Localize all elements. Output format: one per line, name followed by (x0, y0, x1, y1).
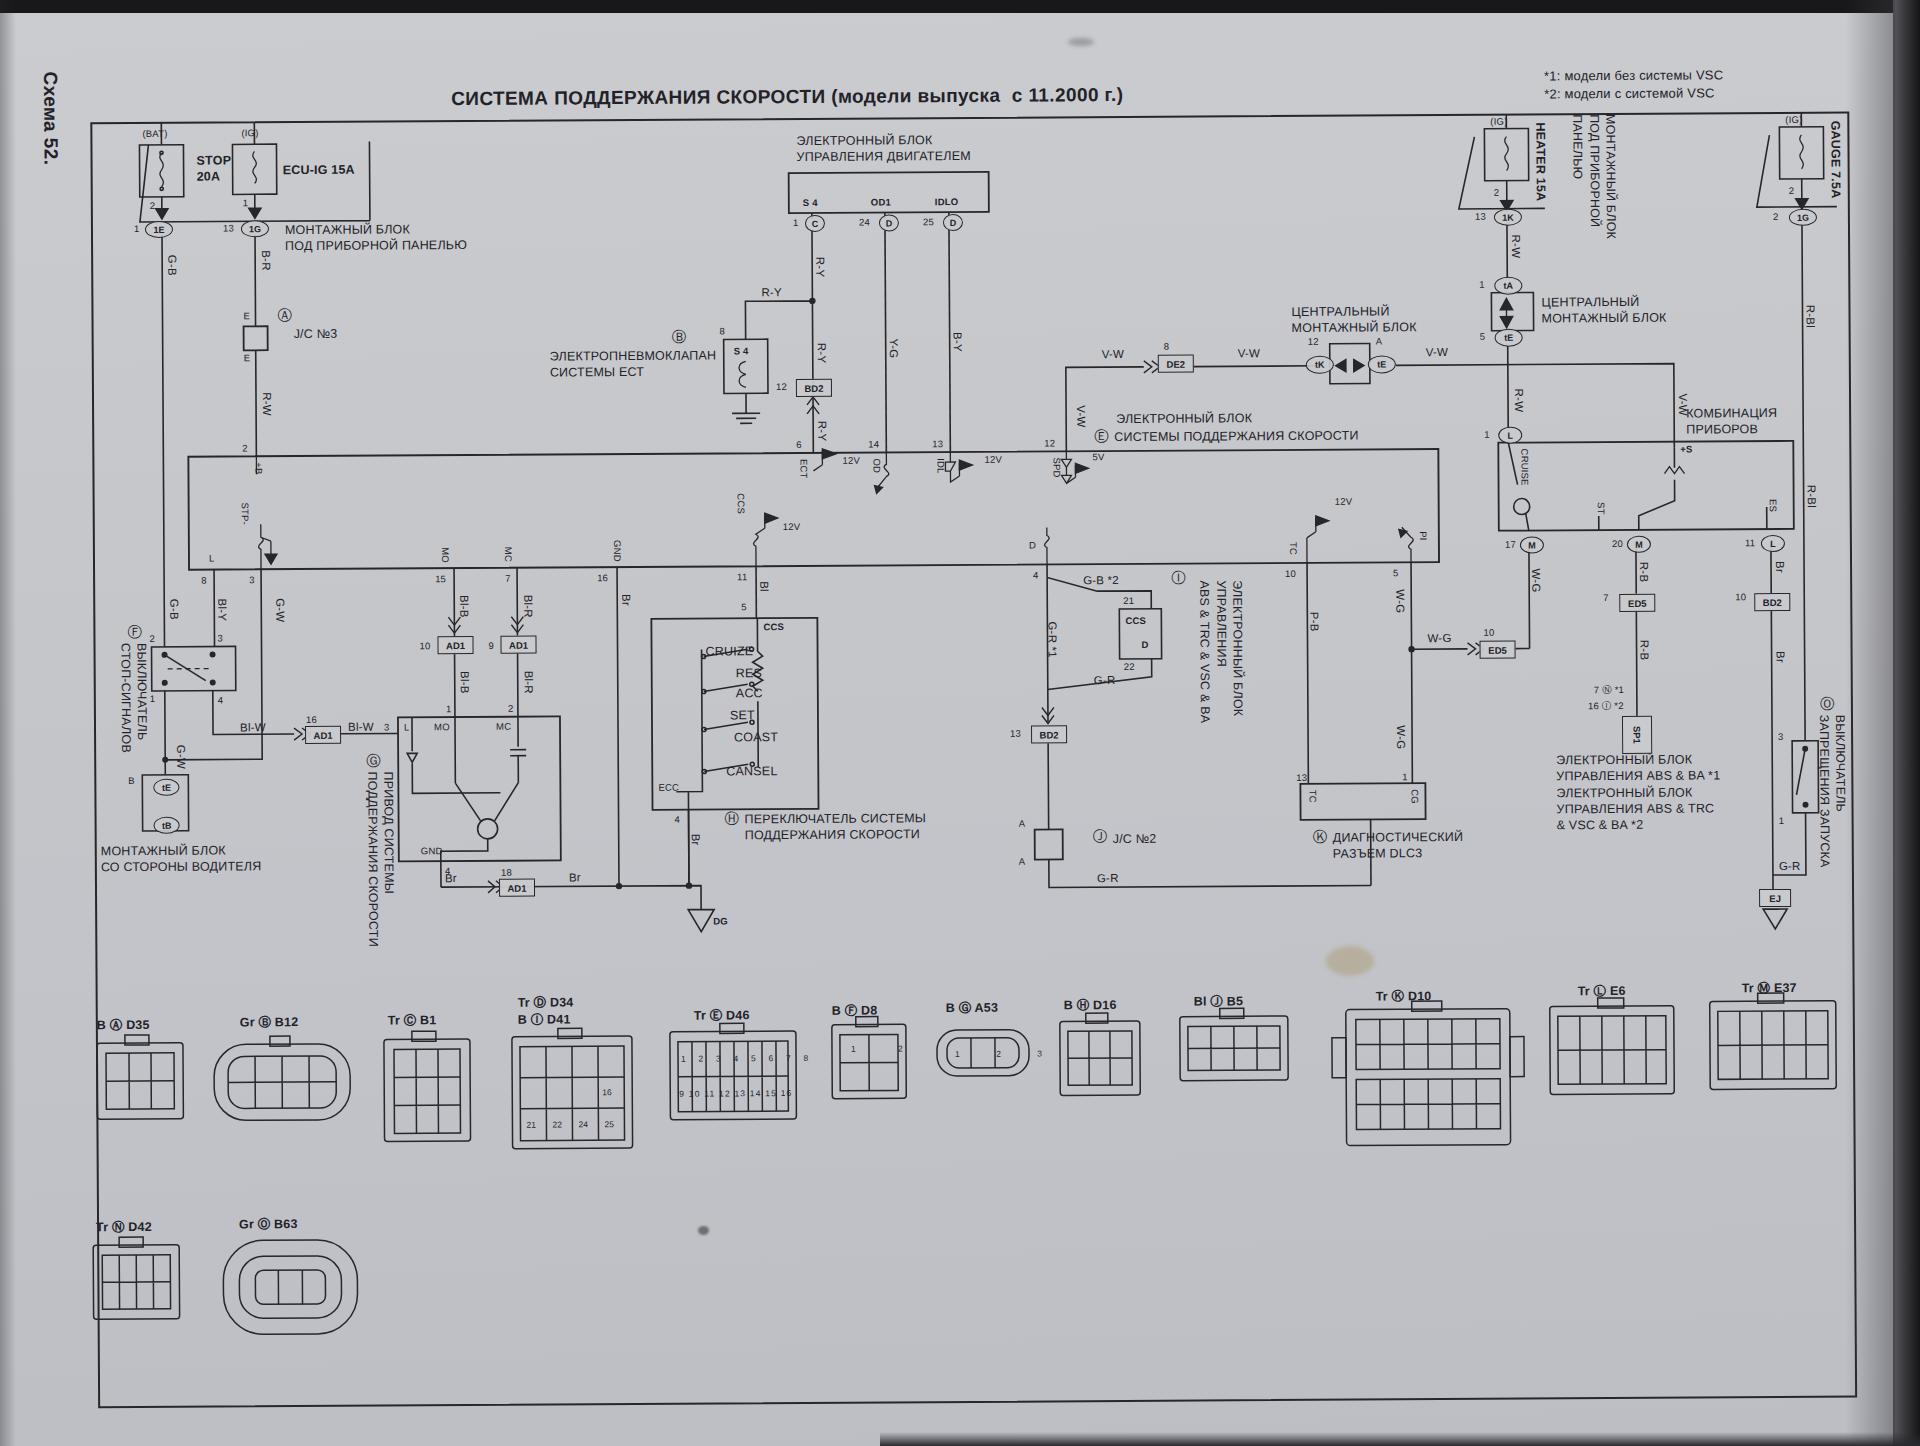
flag-5v: 5V (1092, 451, 1104, 463)
wire-label-gr: G-R (1779, 859, 1801, 874)
page-left-shadow (0, 0, 16, 1446)
cruise-ecu-internals (256, 445, 1413, 569)
terminal-mo: MO (439, 547, 451, 563)
conn-bd2: BD2 (796, 379, 832, 397)
cruise-ecu-callout: Ⓔ (1094, 427, 1109, 446)
wire-label-blr: Bl-R (520, 595, 535, 618)
conn-te: tE (1368, 355, 1396, 373)
note-vsc-2: *2: модели с системой VSC (1544, 85, 1715, 103)
connector-label-d46: Tr Ⓔ D46 (694, 1007, 750, 1024)
d34-cell: 22 (552, 1119, 562, 1129)
pin-5: 5 (1393, 567, 1399, 579)
pin-15: 15 (435, 573, 446, 585)
connector-label-d16: B Ⓗ D16 (1064, 997, 1117, 1014)
connector-b12 (214, 1036, 351, 1121)
engine-ecu-label: ЭЛЕКТРОННЫЙ БЛОК УПРАВЛЕНИЯ ДВИГАТЕЛЕМ (796, 132, 970, 166)
d34-cell: 21 (526, 1120, 536, 1130)
wire-label-br: Br (1773, 651, 1788, 663)
dlc3-pin-13: 13 (1296, 772, 1307, 784)
connector-d16 (1060, 1013, 1140, 1095)
wire-label-vw: V-W (1238, 346, 1260, 361)
abs-callout: Ⓘ (1171, 569, 1186, 588)
wire-label-yg: Y-G (886, 338, 901, 358)
bd2-12-num: 12 (776, 381, 787, 393)
note-vsc-1: *1: модели без системы VSC (1544, 67, 1723, 85)
actuator-pin1: 1 (446, 703, 452, 715)
l-num: 1 (1484, 429, 1490, 441)
wire-label-gw: G-W (173, 745, 188, 769)
dlc3-terminal-cg: CG (1408, 789, 1420, 804)
flag-12v: 12V (783, 521, 801, 533)
cruise-ecu-box (188, 449, 1439, 570)
te2-num: 5 (1480, 331, 1486, 343)
sp1-code: SP1 (1632, 726, 1643, 744)
conn-tk: tK (1306, 356, 1334, 374)
actuator-terminal-gnd: GND (421, 845, 443, 857)
wire-label-wg: W-G (1393, 725, 1408, 749)
control-sw-label: ПЕРЕКЛЮЧАТЕЛЬ СИСТЕМЫ ПОДДЕРЖАНИЯ СКОРОС… (745, 810, 927, 844)
stop-sw-pin3: 3 (217, 633, 223, 645)
driver-jb-label: МОНТАЖНЫЙ БЛОК СО СТОРОНЫ ВОДИТЕЛЯ (101, 842, 262, 875)
wire-label-br: Br (688, 834, 703, 846)
engine-ecu-terminal-idlo: IDLO (935, 196, 959, 208)
conn-tb: tB (154, 817, 180, 834)
conn-ad1: AD1 (499, 879, 535, 897)
wire-label-blb: Bl-B (457, 671, 472, 694)
connector-e6 (1550, 998, 1675, 1095)
wire-label-blw: Bl-W (240, 720, 266, 735)
terminal-idl: IDL (934, 458, 946, 473)
conn-1g2: 1G (1789, 209, 1817, 226)
actuator-terminal-l: L (404, 721, 410, 733)
wire-label-rb: R-B (1636, 562, 1651, 582)
meter-cruise-lamp-label: CRUISE (1518, 449, 1531, 486)
d34-cell: 16 (602, 1087, 612, 1097)
wire-label-gb2: G-B *2 (1083, 573, 1119, 588)
dlc3-pin-1: 1 (1402, 771, 1408, 783)
te-num: A (1376, 335, 1383, 347)
wire-label-blr: Bl-R (521, 671, 536, 694)
meter-es: ES (1766, 499, 1778, 512)
inhibit-switch-label: ВЫКЛЮЧАТЕЛЬ ЗАПРЕЩЕНИЯ ЗАПУСКА (1815, 715, 1848, 868)
m20-num: 20 (1612, 538, 1623, 550)
gauge-fuse-pin: 2 (1789, 185, 1795, 197)
dg-ground-label: DG (713, 915, 728, 927)
jc2-label: J/C №2 (1113, 831, 1157, 848)
wire-label-br: Br (1772, 561, 1787, 573)
terminal-tc: TC (1287, 542, 1299, 555)
page-fold-shadow (1845, 0, 1895, 1446)
ad1-16-num: 16 (306, 714, 317, 726)
pin-4: 4 (1033, 570, 1039, 582)
ej-ground-label: EJ (1759, 889, 1791, 907)
stop-switch-label: ВЫКЛЮЧАТЕЛЬ СТОП-СИГНАЛОВ (117, 643, 150, 753)
connector-label-d34: Tr Ⓓ D34 (518, 994, 574, 1011)
conn-ad1: AD1 (437, 636, 473, 654)
sp1-pin-n: 7 Ⓝ *1 (1594, 684, 1624, 697)
connector-label-e37: Tr Ⓜ E37 (1742, 980, 1797, 997)
connector-label-d41: B Ⓘ D41 (518, 1011, 571, 1028)
jc2-a-top: A (1019, 818, 1026, 830)
wire-label-bly: Bl-Y (214, 598, 229, 621)
conn-ed5: ED5 (1619, 594, 1655, 612)
engine-ecu-pin25: 25 (923, 216, 934, 228)
paper-spot (698, 1226, 709, 1235)
page-title: СИСТЕМА ПОДДЕРЖАНИЯ СКОРОСТИ (модели вып… (451, 83, 1123, 112)
heater-fuse-pin: 2 (1494, 187, 1500, 199)
wire-label-gr: G-R (1097, 871, 1119, 886)
conn-m: M (1520, 536, 1544, 553)
connector-label-b12: Gr Ⓑ B12 (240, 1014, 299, 1031)
actuator-box (397, 567, 561, 861)
flag-12v: 12V (984, 454, 1002, 466)
connector-label-b5: Bl Ⓙ B5 (1194, 993, 1243, 1010)
engine-ecu-pin24: 24 (859, 217, 870, 229)
ecuig-fuse-label: ECU-IG 15A (283, 162, 355, 179)
control-sw-cansel: CANSEL (726, 763, 777, 780)
a53-cells: 1 2 3 (955, 1048, 1059, 1059)
control-sw-coast: COAST (734, 729, 778, 746)
m17-num: 17 (1505, 539, 1516, 551)
ta-num: 1 (1479, 279, 1485, 291)
cruise-ecu-label-1: ЭЛЕКТРОННЫЙ БЛОК (1116, 410, 1252, 427)
abs-terminal-ccs: CCS (1125, 615, 1146, 627)
wire-label-vw: V-W (1102, 347, 1124, 362)
de2-8-num: 8 (1164, 341, 1170, 353)
control-sw-ecc: ECC (658, 782, 679, 794)
terminal-pi: PI (1416, 531, 1428, 540)
l11-num: 11 (1745, 537, 1755, 549)
ad1-18-num: 18 (501, 867, 512, 879)
page-right-edge (1893, 0, 1920, 1446)
wire-label-wg: W-G (1427, 631, 1451, 646)
conn-ed5: ED5 (1480, 641, 1516, 659)
wire-label-gr1: G-R *1 (1044, 621, 1059, 657)
jc3-callout: Ⓐ (277, 306, 292, 325)
jc2-a-bottom: A (1019, 856, 1026, 868)
engine-ecu-pin1: 1 (793, 217, 799, 229)
engine-ecu-terminal-od1: OD1 (871, 196, 891, 208)
conn-1g: 1G (241, 220, 269, 237)
center-jb-label: ЦЕНТРАЛЬНЫЙ МОНТАЖНЫЙ БЛОК (1291, 303, 1416, 336)
connector-d46 (670, 1023, 797, 1120)
conn-te2: tE (1495, 329, 1523, 347)
valve-label: ЭЛЕКТРОПНЕВМОКЛАПАН СИСТЕМЫ ЕСТ (550, 347, 717, 381)
wire-label-rbl: R-Bl (1803, 305, 1818, 328)
wire-label-gw: G-W (272, 598, 287, 622)
ej-ground (1763, 909, 1787, 929)
wire-label-bl: Bl (756, 581, 771, 592)
pen-mark (1068, 38, 1094, 46)
pin-6: 6 (796, 439, 802, 451)
wire-label-gb: G-B (164, 255, 179, 276)
actuator-label: ПРИВОД СИСТЕМЫ ПОДДЕРЖАНИЯ СКОРОСТИ (364, 771, 398, 946)
flag-12v: 12V (1335, 496, 1353, 508)
wire-label-by: B-Y (950, 332, 965, 352)
sp1-box: SP1 (1622, 716, 1652, 754)
inhibit-callout: Ⓞ (1820, 695, 1835, 714)
meter-label: КОМБИНАЦИЯ ПРИБОРОВ (1686, 405, 1777, 438)
under-panel-jb-right-label: МОНТАЖНЫЙ БЛОК ПОД ПРИБОРНОЙ ПАНЕЛЬЮ (1570, 114, 1620, 239)
control-sw-cruize: CRUIZE (706, 643, 754, 660)
bd2-10-num: 10 (1735, 591, 1746, 603)
abs-terminal-d: D (1141, 639, 1148, 651)
page-bottom-shadow (880, 1432, 1920, 1446)
wire-label-vw: V-W (1073, 405, 1088, 427)
pin-8: 8 (201, 575, 207, 587)
engine-ecu-conn-d: D (943, 214, 963, 231)
control-sw-acc: ACC (736, 685, 763, 701)
stop-fuse-tag: (BAT) (142, 128, 167, 140)
control-sw-callout: Ⓗ (725, 809, 740, 828)
conn-ta: tA (1494, 277, 1522, 295)
wire-label-rbl: R-Bl (1804, 485, 1819, 508)
bd2-13-num: 13 (1010, 728, 1021, 740)
control-sw-pin5: 5 (741, 601, 747, 613)
right-jb-label: ЦЕНТРАЛЬНЫЙ МОНТАЖНЫЙ БЛОК (1541, 294, 1666, 327)
stop-light-switch (152, 646, 236, 691)
engine-ecu-conn-c: C (805, 215, 825, 232)
sp1-pin-i: 16 Ⓘ *2 (1588, 700, 1624, 713)
wire-label-ry: R-Y (814, 343, 829, 363)
wire-label-gb: G-B (166, 599, 181, 620)
wire-label-br: B-R (258, 250, 273, 270)
pin-10: 10 (1285, 568, 1296, 580)
d34-cell: 24 (578, 1119, 588, 1129)
wire-label-pb: P-B (1306, 612, 1321, 632)
wire-label-rw: R-W (259, 392, 274, 416)
connector-label-b1: Tr Ⓒ B1 (388, 1012, 437, 1029)
jc3-pin-bottom: E (244, 352, 251, 364)
engine-ecu-conn-d: D (879, 214, 899, 231)
pin-7: 7 (505, 573, 511, 585)
diagram-sheet: 21 22 24 25 16 1 2 3 4 5 6 7 8 9 10 11 1… (0, 0, 1920, 1446)
connector-label-d8: B Ⓕ D8 (832, 1003, 878, 1020)
conn-1g-num: 13 (223, 222, 234, 234)
pin-14: 14 (868, 438, 879, 450)
scanned-wiring-diagram-page: 21 22 24 25 16 1 2 3 4 5 6 7 8 9 10 11 1… (0, 0, 1920, 1446)
actuator-callout: Ⓖ (366, 752, 381, 771)
dlc3-terminal-tc: TC (1306, 790, 1318, 803)
connector-d35 (97, 1035, 184, 1120)
wire-label-gr: G-R (1094, 673, 1116, 688)
connector-label-e6: Tr Ⓛ E6 (1578, 983, 1626, 1000)
pin-12: 12 (1044, 437, 1055, 449)
wire-label-wg: W-G (1392, 589, 1407, 613)
ecuig-fuse-tag: (IG) (241, 127, 258, 139)
wire-label-br: Br (445, 871, 457, 886)
engine-ecu-terminal-s4: S 4 (803, 197, 818, 209)
terminal-ect: ECT (797, 459, 809, 479)
conn-1k: 1K (1494, 209, 1522, 226)
terminal-ccs: CCS (734, 493, 746, 514)
heater-fuse-tag: (IG) (1490, 116, 1507, 128)
ry-circuit-ect-valve (723, 231, 819, 454)
wire-label-ry: R-Y (761, 285, 781, 300)
terminal-plus-b: +B (252, 462, 264, 474)
page-top-edge (0, 0, 1920, 13)
terminal-l: L (209, 553, 215, 565)
abs-pin-22: 22 (1124, 661, 1135, 673)
connector-d10 (1332, 1001, 1525, 1146)
pin-3: 3 (249, 574, 255, 586)
driver-jb-b: B (128, 775, 135, 787)
connector-label-a53: B Ⓖ A53 (946, 1000, 998, 1017)
pin-16: 16 (597, 572, 608, 584)
cruise-ecu-label-2: СИСТЕМЫ ПОДДЕРЖАНИЯ СКОРОСТИ (1114, 428, 1358, 446)
pin-11: 11 (737, 571, 747, 583)
jc3-pin-top: E (243, 310, 250, 322)
terminal-od: OD (870, 458, 882, 473)
scheme-number: Схема 52. (37, 71, 62, 165)
ed5-10-num: 10 (1483, 627, 1494, 639)
dlc3-label: ДИАГНОСТИЧЕСКИЙ РАЗЪЕМ DLC3 (1333, 829, 1464, 862)
connector-b1 (384, 1031, 471, 1142)
terminal-d: D (1029, 540, 1036, 552)
d46-row2: 9 10 11 12 13 14 15 16 (679, 1088, 792, 1099)
inhibit-switch (1772, 741, 1819, 875)
connector-d8 (832, 1016, 906, 1098)
connector-e37 (1710, 993, 1837, 1090)
connector-b5 (1180, 1008, 1288, 1081)
wire-label-rb: R-B (1637, 640, 1652, 660)
wire-label-br: Br (618, 594, 633, 606)
abs-ecu-vertical-label: ЭЛЕКТРОННЫЙ БЛОК УПРАВЛЕНИЯ ABS & TRC & … (1196, 580, 1246, 723)
dlc3-callout: Ⓚ (1313, 828, 1328, 847)
wire-label-rw: R-W (1508, 235, 1523, 259)
conn-1g2-num: 2 (1773, 211, 1779, 223)
conn-m: M (1627, 536, 1651, 553)
conn-te3: tE (153, 779, 179, 796)
gauge-fuse-label: GAUGE 7.5A (1827, 121, 1844, 199)
conn-l: L (1761, 535, 1785, 552)
pin-13: 13 (932, 438, 943, 450)
wire-label-blw: Bl-W (348, 720, 374, 735)
paper-stain (1326, 946, 1374, 976)
gauge-fuse-tag: (IG) (1785, 114, 1802, 126)
connector-label-d35: B Ⓐ D35 (97, 1017, 150, 1034)
wire-label-vw: V-W (1426, 345, 1448, 360)
valve-callout: Ⓑ (672, 328, 687, 347)
wire-label-wg: W-G (1528, 568, 1543, 592)
conn-bd2: BD2 (1754, 593, 1790, 611)
under-panel-jb-label: МОНТАЖНЫЙ БЛОК ПОД ПРИБОРНОЙ ПАНЕЛЬЮ (285, 221, 467, 255)
d46-row1: 1 2 3 4 5 6 7 8 (681, 1053, 813, 1064)
wire-label-rw: R-W (1511, 389, 1526, 413)
wire-label-br: Br (569, 870, 581, 885)
jc2-callout: Ⓙ (1093, 827, 1108, 846)
wire-label-ry: R-Y (812, 257, 827, 277)
connector-label-b63: Gr Ⓞ B63 (239, 1216, 298, 1233)
connector-label-d42: Tr Ⓝ D42 (96, 1219, 152, 1236)
control-sw-set: SET (730, 707, 755, 723)
ed5-7-num: 7 (1603, 592, 1609, 604)
actuator-terminal-mc: MC (496, 721, 511, 733)
terminal-mc: MC (502, 547, 514, 562)
ad1-9-num: 9 (488, 640, 494, 652)
conn-ad1: AD1 (305, 726, 341, 744)
actuator-pin3: 3 (384, 721, 390, 733)
valve-terminal: S 4 (734, 345, 749, 357)
meter-st: ST (1594, 502, 1606, 515)
inhibit-pin-bottom: 1 (1779, 815, 1785, 827)
connector-cell-numbers: 21 22 24 25 16 1 2 3 4 5 6 7 8 9 10 11 1… (526, 1042, 1059, 1129)
conn-1k-num: 13 (1475, 211, 1486, 223)
heater-fuse-label: HEATER 15A (1532, 122, 1549, 201)
stop-fuse-label: STOP 20A (197, 152, 232, 185)
terminal-stp: STP- (238, 502, 250, 525)
conn-l: L (1498, 427, 1522, 444)
stop-sw-pin1: 1 (150, 693, 156, 705)
stop-switch-callout: Ⓕ (127, 623, 142, 642)
connector-label-d10: Tr Ⓚ D10 (1376, 988, 1432, 1005)
terminal-gnd: GND (611, 540, 623, 562)
stop-fuse-pin: 2 (150, 200, 156, 212)
stop-sw-pin4: 4 (218, 694, 224, 706)
conn-1e: 1E (145, 221, 173, 238)
tk-num: 12 (1308, 336, 1319, 348)
inhibit-pin-top: 3 (1778, 731, 1784, 743)
abs-ecu-note: ЭЛЕКТРОННЫЙ БЛОК УПРАВЛЕНИЯ ABS & BA *1 … (1556, 751, 1720, 833)
conn-ad1: AD1 (500, 636, 536, 654)
d8-cells: 1 2 (851, 1043, 923, 1053)
ecuig-fuse-pin: 1 (243, 197, 249, 209)
jc3-label: J/C №3 (294, 326, 338, 343)
connector-b63 (223, 1240, 358, 1335)
ad1-10-num: 10 (419, 640, 430, 652)
actuator-terminal-mo: MO (434, 721, 450, 733)
wire-label-blb: Bl-B (456, 595, 471, 618)
connector-d34-d41 (512, 1028, 633, 1149)
valve-pin: 8 (720, 325, 726, 337)
abs-pin-21: 21 (1123, 595, 1134, 607)
combination-meter-box (1498, 441, 1794, 531)
control-sw-res: RES (736, 665, 762, 681)
meter-plus-s: +S (1680, 444, 1692, 456)
actuator-pin2: 2 (508, 703, 514, 715)
stop-sw-pin2: 2 (149, 633, 155, 645)
control-sw-ccs: CCS (763, 621, 784, 633)
wire-label-ry: R-Y (814, 421, 829, 441)
connector-d42 (93, 1237, 179, 1320)
stop-fuse-circuit (139, 123, 186, 647)
conn-bd2: BD2 (1031, 725, 1067, 743)
pin-2: 2 (242, 442, 248, 454)
control-sw-pin4: 4 (675, 814, 681, 826)
conn-de2: DE2 (1158, 355, 1194, 373)
d34-cell: 25 (604, 1119, 614, 1129)
terminal-spd: SPD (1050, 457, 1062, 477)
flag-12v: 12V (842, 455, 860, 467)
conn-1e-num: 1 (134, 223, 140, 235)
